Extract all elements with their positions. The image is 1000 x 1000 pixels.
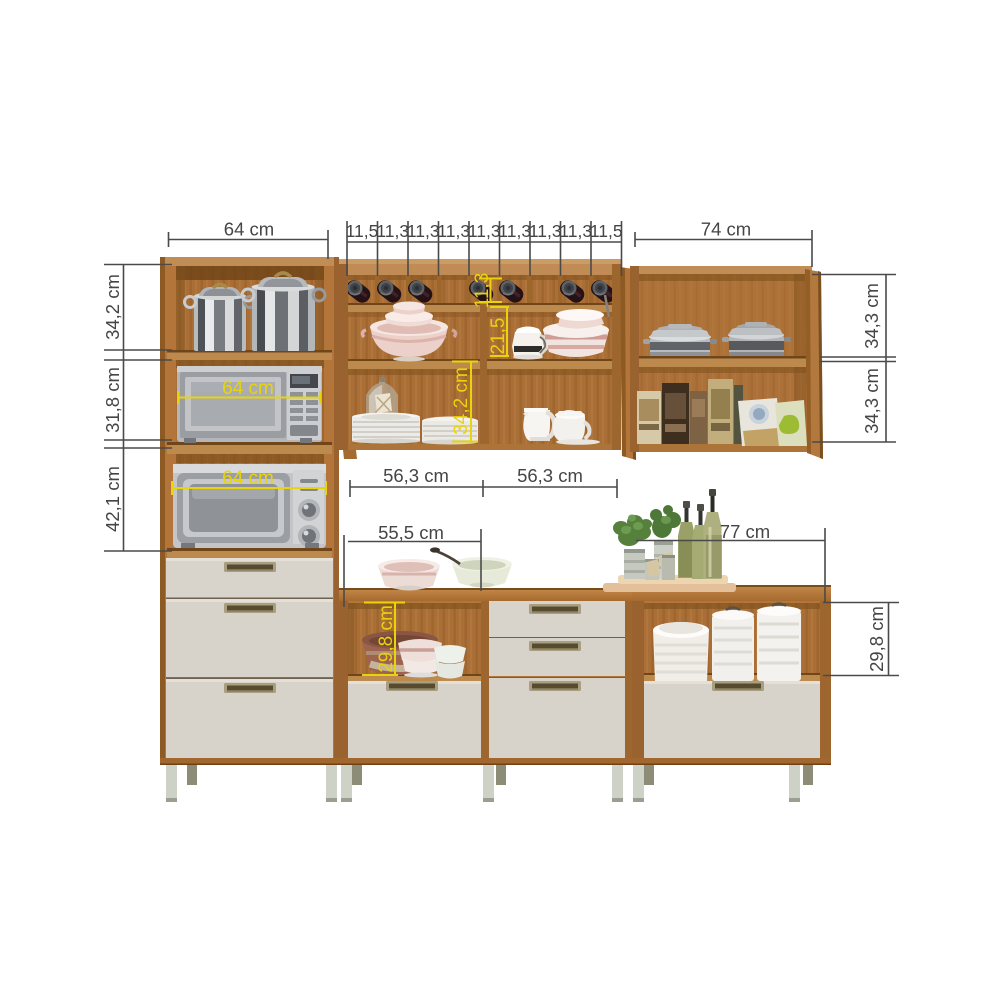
svg-text:42,1 cm: 42,1 cm (102, 466, 123, 532)
svg-text:56,3 cm: 56,3 cm (383, 465, 449, 486)
svg-text:11,3: 11,3 (468, 221, 501, 241)
svg-text:11,3: 11,3 (559, 221, 592, 241)
svg-text:56,3 cm: 56,3 cm (517, 465, 583, 486)
svg-text:11,5: 11,5 (590, 221, 623, 241)
svg-text:11,3: 11,3 (437, 221, 470, 241)
svg-text:11,3: 11,3 (407, 221, 440, 241)
svg-text:77 cm: 77 cm (720, 521, 770, 542)
svg-text:74 cm: 74 cm (701, 219, 751, 240)
svg-text:34,3 cm: 34,3 cm (861, 368, 882, 434)
svg-text:11,5: 11,5 (346, 221, 379, 241)
svg-text:34,2 cm: 34,2 cm (451, 367, 472, 435)
svg-text:64 cm: 64 cm (222, 468, 274, 489)
svg-text:31,8 cm: 31,8 cm (102, 367, 123, 433)
svg-text:11,3: 11,3 (498, 221, 531, 241)
svg-text:64 cm: 64 cm (222, 378, 274, 399)
svg-text:11,3: 11,3 (472, 273, 493, 309)
svg-text:64 cm: 64 cm (224, 219, 274, 240)
svg-text:55,5 cm: 55,5 cm (378, 522, 444, 543)
svg-text:34,2 cm: 34,2 cm (102, 274, 123, 340)
svg-text:29,8 cm: 29,8 cm (866, 606, 887, 672)
svg-text:11,3: 11,3 (529, 221, 562, 241)
svg-text:11,3: 11,3 (376, 221, 409, 241)
svg-text:29,8 cm: 29,8 cm (376, 605, 397, 673)
svg-text:21,5: 21,5 (488, 318, 509, 355)
svg-text:34,3 cm: 34,3 cm (861, 283, 882, 349)
